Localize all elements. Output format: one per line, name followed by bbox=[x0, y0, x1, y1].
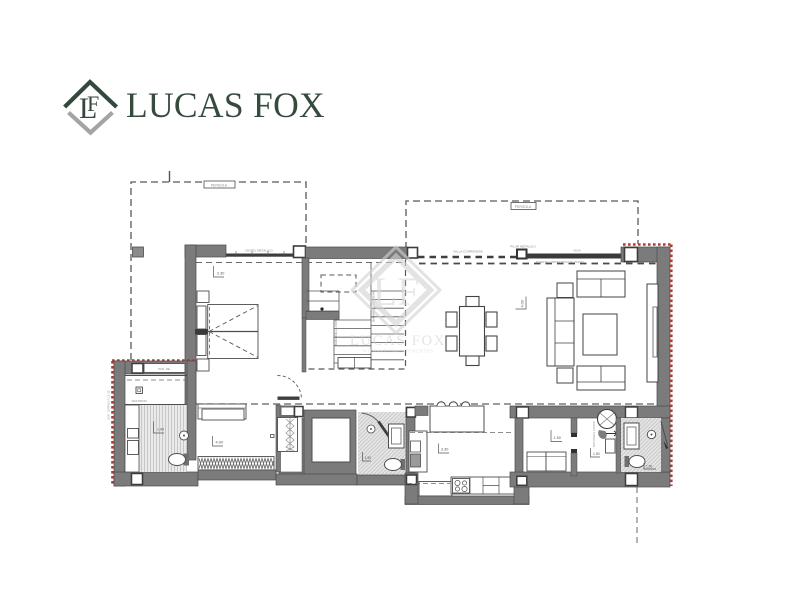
svg-text:1.50: 1.50 bbox=[554, 436, 561, 440]
svg-text:PAN. DE: PAN. DE bbox=[158, 367, 170, 371]
svg-text:1.50: 1.50 bbox=[365, 456, 372, 460]
svg-text:INTERNATIONAL PROPERTIES: INTERNATIONAL PROPERTIES bbox=[362, 349, 434, 354]
svg-text:PILAR METALICO: PILAR METALICO bbox=[510, 244, 536, 248]
svg-text:MONTANTE VIDRIO: MONTANTE VIDRIO bbox=[592, 420, 596, 447]
svg-text:1.94: 1.94 bbox=[157, 428, 164, 432]
svg-text:VALLA CORREDERA: VALLA CORREDERA bbox=[453, 250, 484, 254]
svg-text:1.50: 1.50 bbox=[593, 452, 600, 456]
svg-text:LUCAS FOX: LUCAS FOX bbox=[350, 333, 446, 349]
svg-text:4.00: 4.00 bbox=[216, 441, 223, 445]
svg-text:PERGOLA: PERGOLA bbox=[515, 205, 532, 209]
svg-text:F: F bbox=[87, 91, 99, 116]
svg-text:BARANDILLA CRISTAL: BARANDILLA CRISTAL bbox=[334, 314, 338, 346]
svg-text:VESTIDOR: VESTIDOR bbox=[131, 399, 147, 403]
svg-text:3.30: 3.30 bbox=[441, 448, 448, 452]
svg-text:LF: LF bbox=[373, 269, 420, 314]
svg-text:PUERTA CORREDERA DE VIDRIO: PUERTA CORREDERA DE VIDRIO bbox=[536, 260, 584, 264]
svg-text:2.30: 2.30 bbox=[217, 272, 224, 276]
svg-text:PERGOLA: PERGOLA bbox=[211, 183, 228, 187]
svg-text:1.50: 1.50 bbox=[646, 465, 652, 469]
svg-text:4.00: 4.00 bbox=[521, 300, 525, 307]
svg-text:LUCAS FOX: LUCAS FOX bbox=[126, 85, 325, 125]
svg-text:SUP. TERRAZA 12.35: SUP. TERRAZA 12.35 bbox=[107, 390, 111, 420]
svg-text:VIGA: VIGA bbox=[573, 249, 581, 253]
svg-text:DINTEL METALICO: DINTEL METALICO bbox=[245, 249, 273, 253]
